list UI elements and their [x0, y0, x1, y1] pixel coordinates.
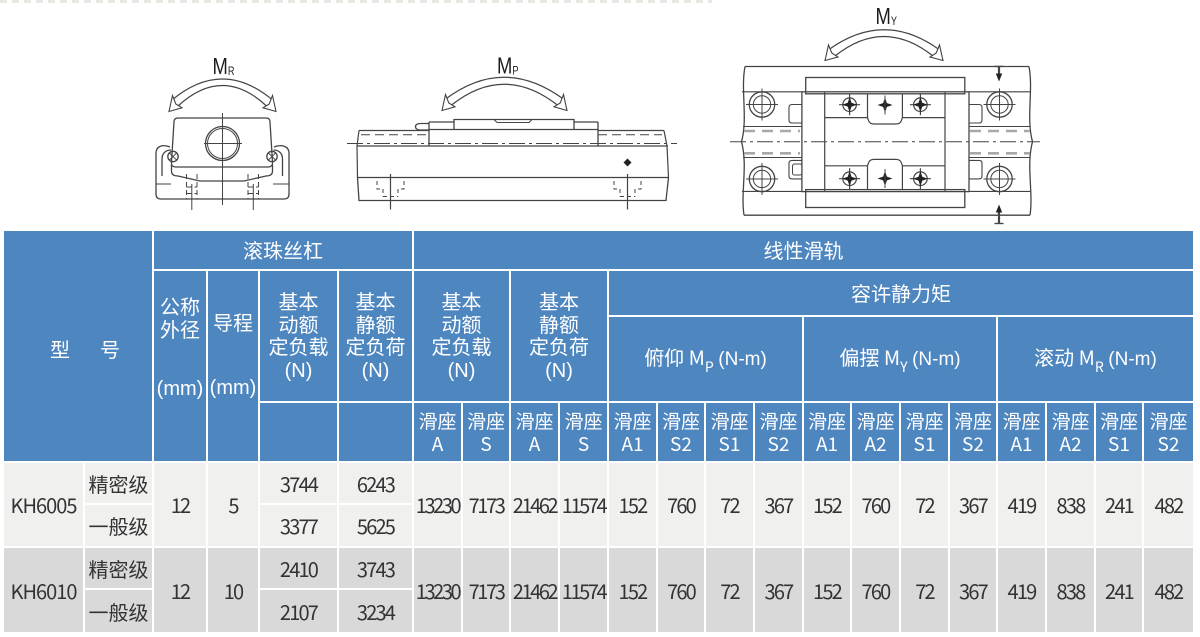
svg-text:MY: MY	[876, 4, 898, 29]
svg-text:MP: MP	[497, 54, 519, 79]
svg-text:MR: MR	[213, 54, 235, 79]
